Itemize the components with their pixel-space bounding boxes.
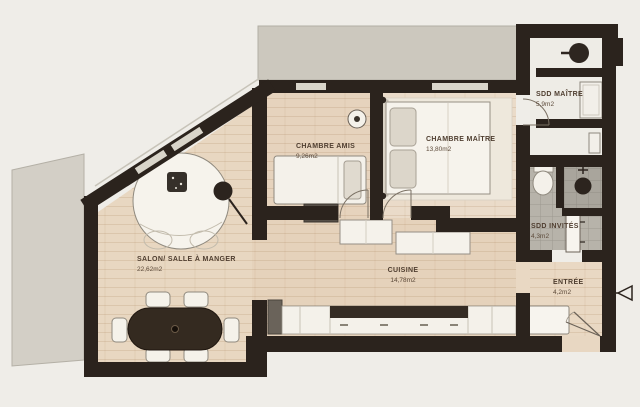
top-terrace — [258, 26, 524, 80]
guest-toilet — [533, 164, 553, 195]
chambre-maitre-label: CHAMBRE MAÎTRE — [426, 134, 495, 143]
sdd-invites-label: SDD INVITÉS — [531, 221, 579, 230]
sdd-invites-area: 4,3m2 — [531, 233, 549, 240]
cuisine-area: 14,78m2 — [390, 277, 416, 284]
entree-label: ENTRÉE — [553, 277, 584, 286]
chambre-amis-area: 9,26m2 — [296, 153, 318, 160]
sdd-maitre-area: 5,9m2 — [536, 101, 554, 108]
floor-plan: SALON/ SALLE À MANGER 22,62m2 CHAMBRE AM… — [0, 0, 640, 407]
entree-area: 4,2m2 — [553, 289, 571, 296]
salon-area: 22,62m2 — [137, 266, 163, 273]
single-bed — [274, 156, 366, 204]
chambre-amis-label: CHAMBRE AMIS — [296, 143, 355, 150]
cuisine-label: CUISINE — [388, 267, 419, 274]
salon-label: SALON/ SALLE À MANGER — [137, 254, 236, 263]
nightstand-lamp-icon — [348, 110, 366, 128]
left-terrace — [12, 154, 84, 366]
chambre-maitre-area: 13,80m2 — [426, 146, 452, 153]
floor-plan-canvas: SALON/ SALLE À MANGER 22,62m2 CHAMBRE AM… — [0, 0, 640, 407]
sdd-maitre-label: SDD MAÎTRE — [536, 89, 583, 98]
entry-closet — [527, 306, 569, 334]
